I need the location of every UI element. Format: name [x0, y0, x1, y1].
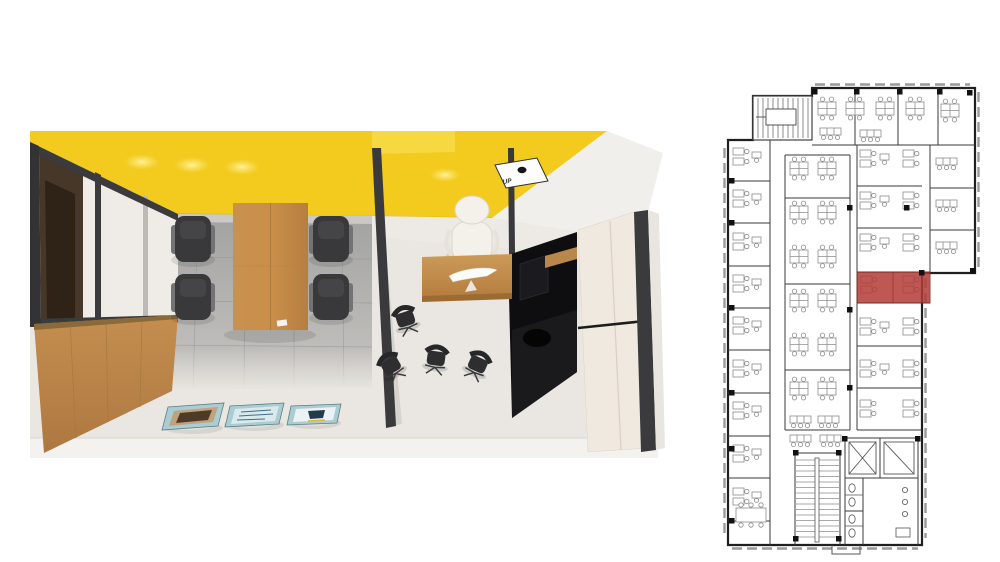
meeting-chair-left-1 — [171, 216, 215, 267]
meeting-chair-right-2 — [309, 274, 353, 325]
interior-render: UP — [25, 120, 665, 465]
highlighted-room — [857, 272, 930, 303]
meeting-chair-left-2 — [171, 274, 215, 325]
ceiling-light — [174, 157, 210, 173]
conference-table — [224, 203, 316, 343]
design-board: UP — [0, 0, 1000, 562]
up-sign-label: UP — [502, 178, 513, 186]
ceiling-light — [224, 159, 260, 175]
floor-edge-strip — [30, 438, 658, 458]
floor-poster-3 — [287, 404, 341, 425]
chair-silhouette — [523, 329, 551, 347]
executive-desk — [422, 254, 512, 302]
wardrobe-panels — [578, 210, 665, 452]
logo-dot — [518, 167, 527, 173]
floor-poster-1 — [162, 403, 224, 430]
ceiling-light — [430, 168, 460, 182]
ceiling-step — [372, 131, 455, 154]
building-outline — [728, 88, 975, 545]
floor-poster-2 — [225, 403, 284, 427]
meeting-chair-right-1 — [309, 216, 353, 267]
floor-plan — [700, 78, 1000, 562]
staircase-top — [753, 96, 812, 140]
ceiling-light — [124, 154, 160, 170]
